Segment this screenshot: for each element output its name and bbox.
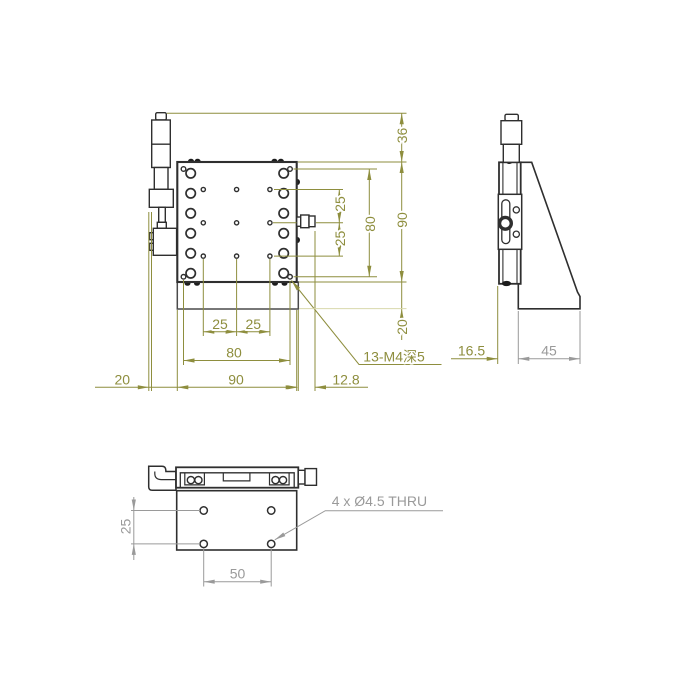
bottom-view — [149, 466, 317, 550]
dim-90-horizontal: 90 — [228, 372, 244, 388]
side-bottom-bump — [502, 281, 511, 286]
micrometer-front — [149, 113, 176, 256]
dim-20-left: 20 — [115, 372, 131, 388]
engineering-drawing: 36 90 80 25 25 20 25 25 80 90 20 12.8 13… — [0, 0, 700, 700]
dim-16-5: 16.5 — [458, 343, 485, 359]
dim-80-vertical: 80 — [362, 216, 378, 232]
dim-25-horizontal-left: 25 — [212, 316, 228, 332]
front-base-plate — [177, 282, 298, 309]
dim-36: 36 — [394, 128, 410, 144]
dim-25-vertical-lower: 25 — [332, 231, 348, 247]
note-thru-holes: 4 x Ø4.5 THRU — [332, 493, 427, 509]
dim-25-bottom-view: 25 — [118, 519, 134, 535]
side-knob-ring — [500, 217, 512, 229]
front-view — [149, 113, 315, 309]
dim-20-base-height: 20 — [394, 319, 410, 335]
dim-45: 45 — [541, 343, 557, 359]
bottom-micrometer-bracket — [149, 466, 176, 490]
dim-12-8: 12.8 — [332, 372, 359, 388]
drive-shaft — [297, 215, 315, 228]
side-view — [498, 114, 580, 308]
dim-90-vertical: 90 — [394, 212, 410, 228]
note-m4-holes: 13-M4深5 — [363, 349, 425, 365]
drawing-canvas: 36 90 80 25 25 20 25 25 80 90 20 12.8 13… — [0, 0, 700, 700]
micrometer-side — [501, 114, 522, 162]
dim-25-horizontal-right: 25 — [246, 316, 262, 332]
dim-50: 50 — [230, 566, 246, 582]
side-wedge-bracket — [518, 162, 580, 308]
dim-25-vertical-upper: 25 — [332, 196, 348, 212]
dim-80-horizontal: 80 — [226, 345, 242, 361]
bottom-shaft-stub — [298, 469, 316, 486]
bottom-base-plate — [177, 491, 297, 550]
